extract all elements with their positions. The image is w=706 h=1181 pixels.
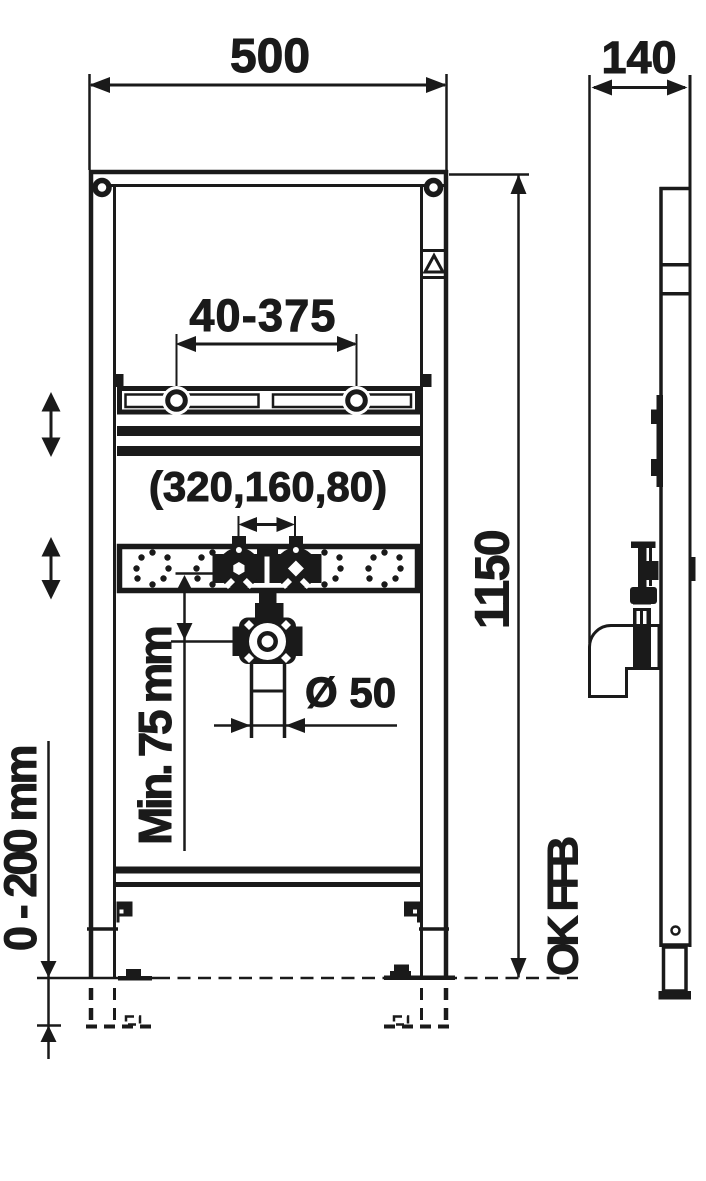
svg-text:140: 140 bbox=[601, 32, 676, 83]
svg-text:0 - 200 mm: 0 - 200 mm bbox=[0, 746, 46, 951]
svg-text:(320,160,80): (320,160,80) bbox=[149, 463, 387, 510]
svg-text:OK FFB: OK FFB bbox=[540, 837, 588, 976]
svg-text:Min. 75 mm: Min. 75 mm bbox=[129, 627, 181, 845]
svg-text:Ø 50: Ø 50 bbox=[305, 669, 396, 716]
svg-text:40-375: 40-375 bbox=[189, 290, 336, 341]
svg-text:1150: 1150 bbox=[467, 531, 520, 629]
svg-text:500: 500 bbox=[230, 30, 310, 83]
